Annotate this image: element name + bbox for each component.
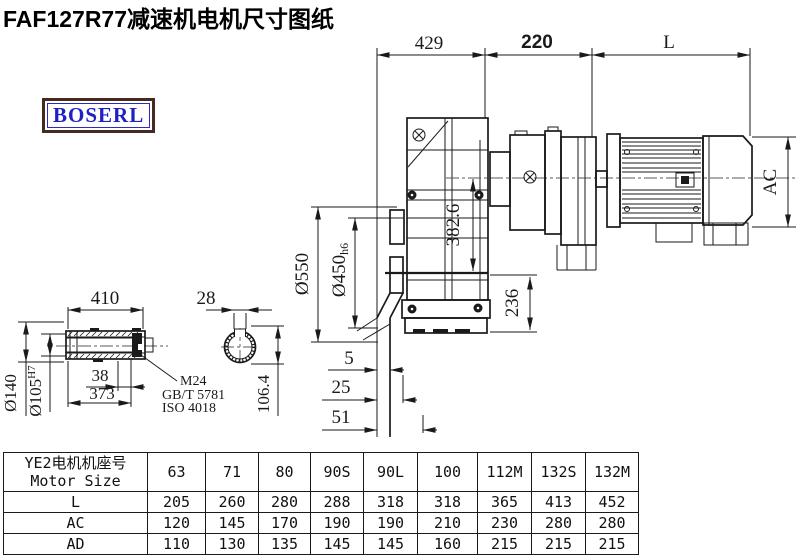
table-row-L: L 205 260 280 288 318 318 365 413 452 bbox=[4, 492, 639, 513]
motor-foot-right bbox=[704, 223, 748, 245]
ac-dim: AC bbox=[752, 137, 796, 227]
row-label-L: L bbox=[4, 492, 148, 513]
dim-28-label: 28 bbox=[197, 288, 216, 309]
table-header-motor-size: YE2电机机座号 Motor Size bbox=[4, 453, 148, 492]
shaft-detail-view: 410 Ø140 Ø105H7 38 373 M24 bbox=[1, 288, 225, 417]
dim-ac-label: AC bbox=[760, 169, 781, 195]
table-cell: 215 bbox=[586, 534, 639, 555]
dim-38-label: 38 bbox=[92, 366, 109, 385]
table-cell: 190 bbox=[311, 513, 364, 534]
col-header-80: 80 bbox=[259, 453, 311, 492]
table-cell: 452 bbox=[586, 492, 639, 513]
standard-iso: ISO 4018 bbox=[162, 401, 216, 416]
dim-phi450-tolerance: h6 bbox=[337, 243, 351, 255]
flange-diameter-dims: Ø550 Ø450h6 bbox=[292, 207, 404, 342]
table-cell: 110 bbox=[148, 534, 206, 555]
dim-phi105-tolerance: H7 bbox=[26, 365, 38, 379]
table-cell: 280 bbox=[586, 513, 639, 534]
thread-callout: M24 bbox=[180, 374, 206, 389]
col-header-100: 100 bbox=[418, 453, 478, 492]
input-adapter bbox=[490, 127, 607, 270]
coupling-stub bbox=[596, 171, 607, 187]
dim-51-label: 51 bbox=[332, 407, 351, 428]
col-header-112m: 112M bbox=[478, 453, 532, 492]
table-cell: 120 bbox=[148, 513, 206, 534]
flange-tab-lower bbox=[390, 257, 403, 293]
table-cell: 280 bbox=[532, 513, 586, 534]
table-cell: 365 bbox=[478, 492, 532, 513]
dim-phi450-label: Ø450h6 bbox=[329, 243, 351, 297]
dim-phi105-label: Ø105H7 bbox=[26, 365, 45, 417]
table-cell: 160 bbox=[418, 534, 478, 555]
motor-flange bbox=[607, 134, 620, 227]
row-label-AC: AC bbox=[4, 513, 148, 534]
table-cell: 210 bbox=[418, 513, 478, 534]
table-cell: 135 bbox=[259, 534, 311, 555]
dim-382-label: 382.6 bbox=[443, 204, 464, 247]
table-header-row: YE2电机机座号 Motor Size 63 71 80 90S 90L 100… bbox=[4, 453, 639, 492]
dim-phi105-value: Ø105 bbox=[26, 379, 45, 417]
col-header-90s: 90S bbox=[311, 453, 364, 492]
table-cell: 130 bbox=[206, 534, 259, 555]
row-label-AD: AD bbox=[4, 534, 148, 555]
drawing-page: FAF127R77减速机电机尺寸图纸 BOSERL 429 220 L bbox=[0, 0, 800, 557]
table-cell: 145 bbox=[206, 513, 259, 534]
table-cell: 170 bbox=[259, 513, 311, 534]
table-cell: 230 bbox=[478, 513, 532, 534]
motor-foot-left bbox=[656, 223, 692, 242]
table-cell: 288 bbox=[311, 492, 364, 513]
table-cell: 145 bbox=[364, 534, 418, 555]
col-header-132m: 132M bbox=[586, 453, 639, 492]
table-cell: 413 bbox=[532, 492, 586, 513]
table-cell: 318 bbox=[418, 492, 478, 513]
motor-size-table: YE2电机机座号 Motor Size 63 71 80 90S 90L 100… bbox=[3, 452, 639, 555]
dim-phi550-label: Ø550 bbox=[292, 253, 313, 295]
table-cell: 205 bbox=[148, 492, 206, 513]
table-cell: 280 bbox=[259, 492, 311, 513]
header-en: Motor Size bbox=[4, 472, 147, 490]
dim-410-label: 410 bbox=[91, 288, 120, 309]
table-row-AD: AD 110 130 135 145 145 160 215 215 215 bbox=[4, 534, 639, 555]
col-header-90l: 90L bbox=[364, 453, 418, 492]
dim-106-label: 106.4 bbox=[254, 374, 273, 413]
dim-373-label: 373 bbox=[89, 384, 115, 403]
header-cn: YE2电机机座号 bbox=[4, 454, 147, 472]
table-cell: 145 bbox=[311, 534, 364, 555]
col-header-132s: 132S bbox=[532, 453, 586, 492]
dim-5-label: 5 bbox=[344, 348, 354, 369]
col-header-71: 71 bbox=[206, 453, 259, 492]
table-cell: 215 bbox=[532, 534, 586, 555]
table-cell: 318 bbox=[364, 492, 418, 513]
dim-25-label: 25 bbox=[332, 377, 351, 398]
dim-220-label: 220 bbox=[521, 32, 553, 53]
dim-phi140-label: Ø140 bbox=[1, 374, 20, 412]
dim-phi450-value: Ø450 bbox=[329, 255, 350, 297]
bottom-offset-dims: 5 25 51 bbox=[322, 348, 437, 433]
table-row-AC: AC 120 145 170 190 190 210 230 280 280 bbox=[4, 513, 639, 534]
top-dimensions: 429 220 L bbox=[377, 32, 750, 437]
table-cell: 190 bbox=[364, 513, 418, 534]
fan-cover bbox=[703, 136, 752, 225]
dim-L-label: L bbox=[663, 32, 675, 53]
col-header-63: 63 bbox=[148, 453, 206, 492]
table-cell: 260 bbox=[206, 492, 259, 513]
leader-line bbox=[141, 355, 177, 381]
electric-motor bbox=[607, 134, 752, 245]
dim-236-label: 236 bbox=[502, 289, 523, 318]
table-cell: 215 bbox=[478, 534, 532, 555]
motor-body bbox=[620, 138, 703, 223]
dim-429-label: 429 bbox=[415, 33, 444, 54]
flange-tab-upper bbox=[390, 210, 404, 244]
